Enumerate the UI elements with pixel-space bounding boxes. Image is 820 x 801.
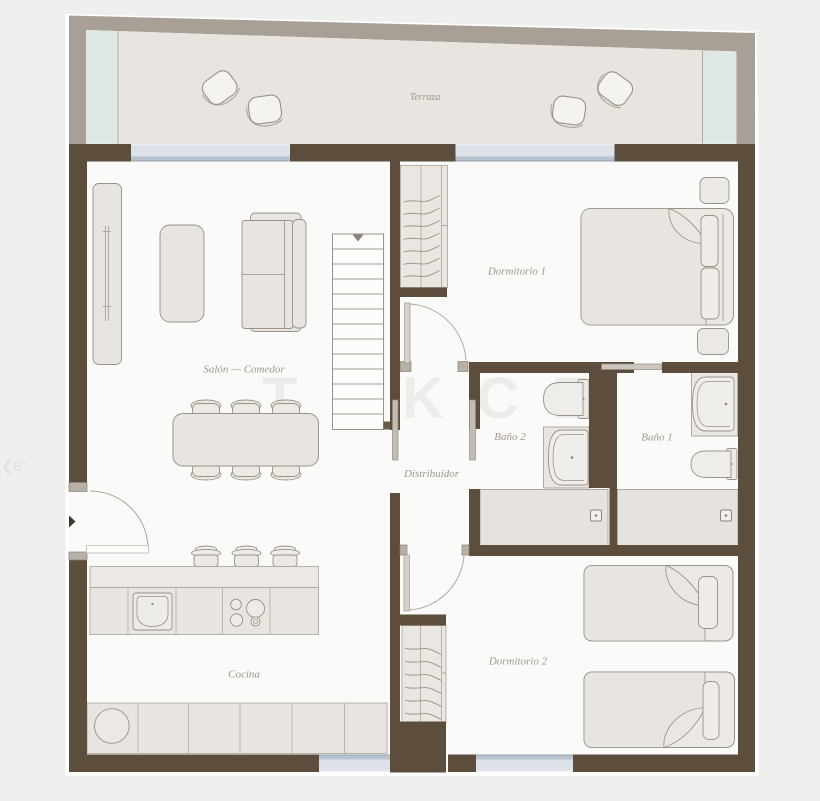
svg-text:Terraza: Terraza — [410, 92, 441, 103]
svg-text:❮8°: ❮8° — [1, 458, 28, 475]
svg-text:Baño 1: Baño 1 — [641, 432, 672, 444]
svg-text:Dormitorio 1: Dormitorio 1 — [487, 266, 546, 278]
svg-text:Dormitorio 2: Dormitorio 2 — [488, 656, 548, 668]
svg-text:Cocina: Cocina — [228, 669, 260, 681]
svg-text:Baño 2: Baño 2 — [494, 431, 526, 443]
svg-text:Salón — Comedor: Salón — Comedor — [203, 364, 285, 376]
svg-text:Distribuidor: Distribuidor — [403, 468, 460, 480]
